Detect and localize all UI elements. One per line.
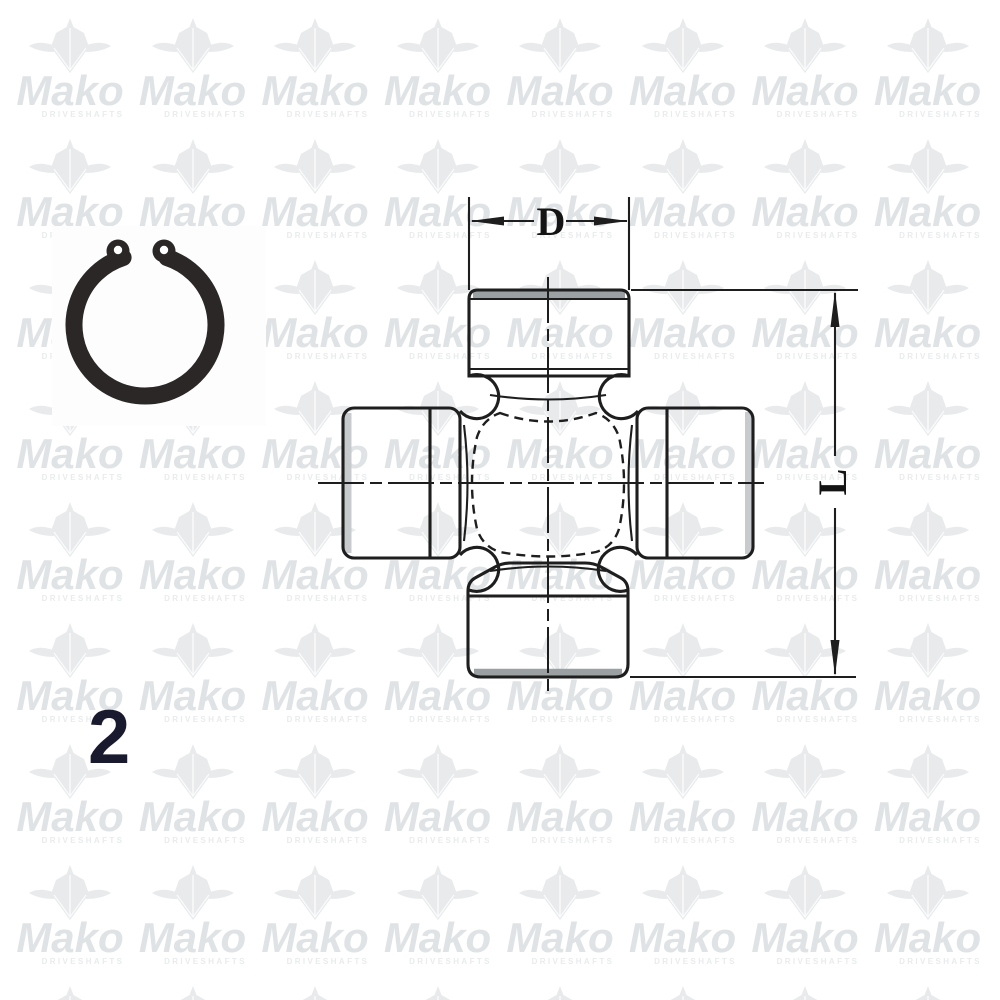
dimension-l-label: L (810, 469, 855, 496)
figure-number: 2 (88, 700, 130, 776)
fillet-top-left (460, 375, 499, 419)
snap-ring-lug-hole-right (160, 246, 168, 254)
dimension-d-label: D (537, 199, 566, 244)
snap-ring-figure (52, 226, 266, 426)
boss-arc-top (490, 395, 606, 400)
l-arrowhead-top (831, 291, 840, 327)
fillet-top-right (599, 375, 638, 419)
d-arrowhead-left (470, 217, 504, 226)
ujoint-cross-figure (318, 277, 764, 696)
product-technical-drawing: Mako DRIVESHAFTS Mako DRIVESHAFTS (0, 0, 1000, 1000)
dimension-d: D (469, 197, 629, 290)
ujoint-drawing-svg: D L (0, 0, 1000, 1000)
snap-ring-lug-hole-left (114, 246, 122, 254)
l-arrowhead-bottom (831, 640, 840, 676)
d-arrowhead-right (594, 217, 628, 226)
